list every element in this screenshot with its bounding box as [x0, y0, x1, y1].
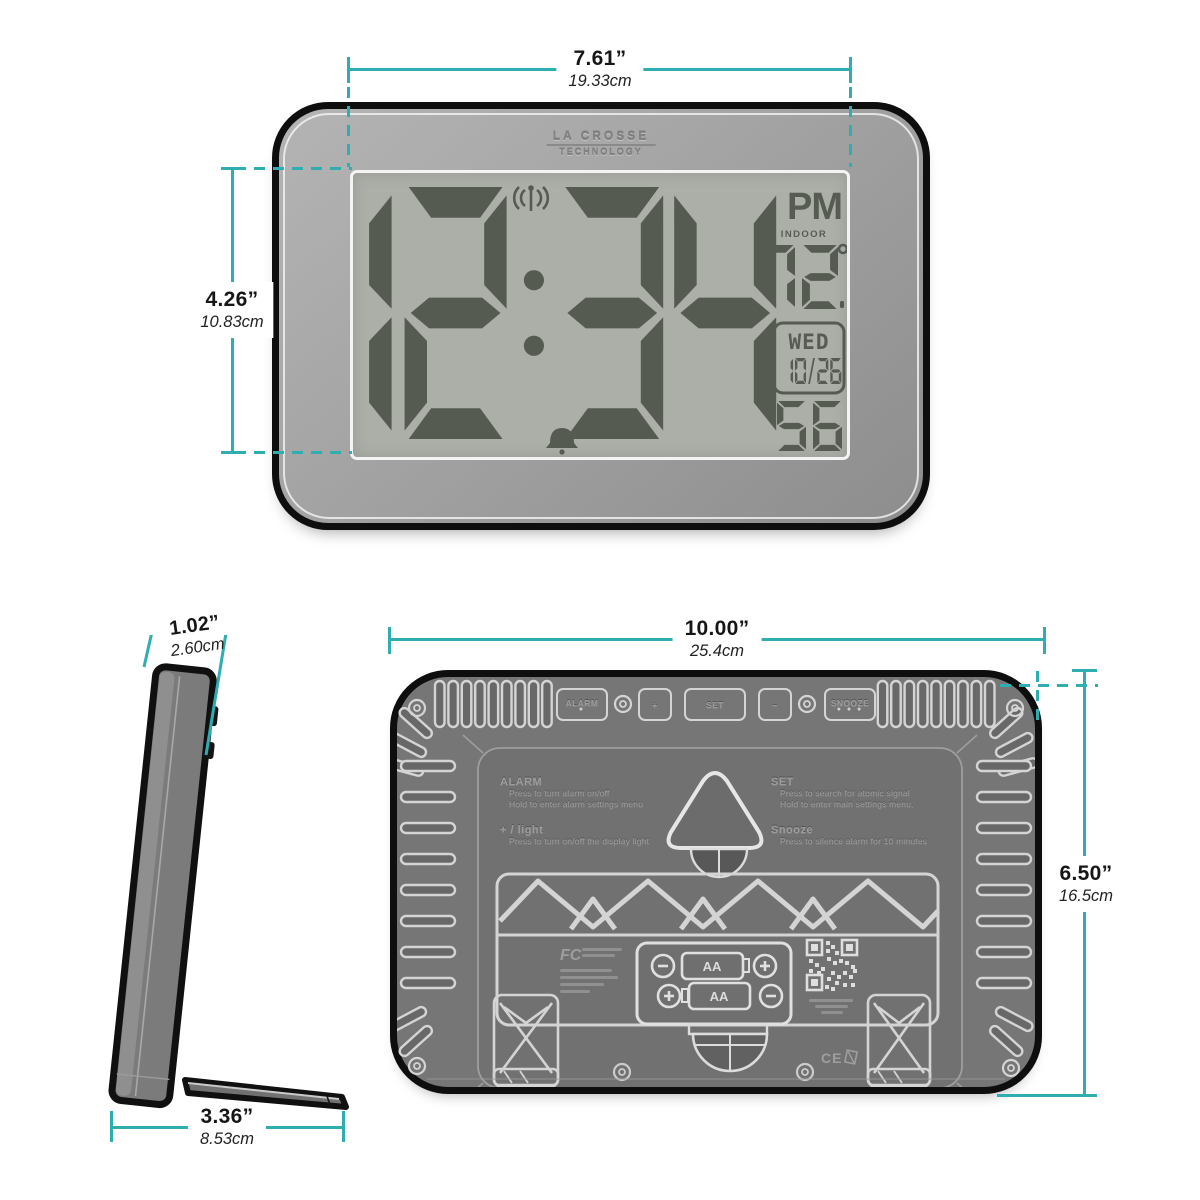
dim-side-base-label: 3.36” 8.53cm — [188, 1104, 266, 1150]
snooze-button: SNOOZE ● ● ● — [824, 688, 876, 721]
dim-cm: 8.53cm — [200, 1130, 254, 1149]
dim-tick — [388, 627, 391, 654]
brand-line2: TECHNOLOGY — [547, 147, 656, 157]
svg-text:WED: WED — [789, 330, 830, 354]
dim-cm: 16.5cm — [1059, 887, 1113, 906]
dim-back-width-label: 10.00” 25.4cm — [673, 616, 762, 662]
extension-dash — [1036, 671, 1039, 725]
svg-text:AA: AA — [703, 959, 722, 974]
extension-dash — [235, 167, 352, 170]
dim-tick — [849, 57, 852, 83]
alarm-button: ALARM ● — [556, 688, 608, 721]
lcd-content: PMINDOORWED — [353, 173, 847, 457]
dim-inches: 10.00” — [685, 617, 750, 641]
minus-button: – — [758, 688, 792, 721]
product-dimension-diagram: LA CROSSE TECHNOLOGY PMINDOORWED 7.61” 1… — [0, 0, 1200, 1200]
extension-dash — [235, 451, 352, 454]
clock-front-view: LA CROSSE TECHNOLOGY PMINDOORWED — [272, 102, 930, 530]
extension-dash — [347, 87, 350, 167]
svg-text:PM: PM — [787, 186, 842, 228]
svg-text:INDOOR: INDOOR — [781, 229, 827, 240]
clock-back-view: AAAAFCCE ALARM ● + SET – SNOOZE ● ● ● AL… — [390, 670, 1042, 1094]
set-button: SET — [684, 688, 746, 721]
dim-inches: 6.50” — [1059, 862, 1113, 886]
dim-tick — [110, 1111, 113, 1142]
dim-tick — [342, 1111, 345, 1142]
dim-cm: 19.33cm — [568, 72, 631, 91]
brand-line1: LA CROSSE — [547, 129, 656, 146]
dim-inches: 3.36” — [200, 1105, 254, 1129]
extension-dash — [1000, 684, 1098, 687]
dim-tick — [997, 1094, 1097, 1097]
svg-text:CE: CE — [821, 1050, 842, 1066]
dim-cm: 10.83cm — [200, 313, 263, 332]
dim-tick — [1072, 669, 1097, 672]
back-details: AAAAFCCE — [397, 677, 1035, 1087]
clock-side-view — [80, 635, 380, 1175]
brand-logo: LA CROSSE TECHNOLOGY — [547, 129, 656, 157]
dim-tick — [1043, 627, 1046, 654]
dim-cm: 25.4cm — [685, 642, 750, 661]
dim-back-height-label: 6.50” 16.5cm — [1051, 856, 1121, 912]
svg-text:FC: FC — [560, 947, 582, 964]
dim-inches: 7.61” — [568, 47, 631, 71]
instructions-right: SET Press to search for atomic signal Ho… — [771, 776, 961, 861]
extension-dash — [849, 87, 852, 167]
svg-text:AA: AA — [710, 989, 729, 1004]
lcd-display: PMINDOORWED — [350, 170, 850, 460]
dim-front-width-label: 7.61” 19.33cm — [556, 46, 643, 92]
instructions-left: ALARM Press to turn alarm on/off Hold to… — [500, 776, 690, 861]
dim-front-height-label: 4.26” 10.83cm — [190, 282, 273, 338]
dim-inches: 4.26” — [200, 288, 263, 312]
plus-button: + — [638, 688, 672, 721]
dim-tick — [347, 57, 350, 83]
